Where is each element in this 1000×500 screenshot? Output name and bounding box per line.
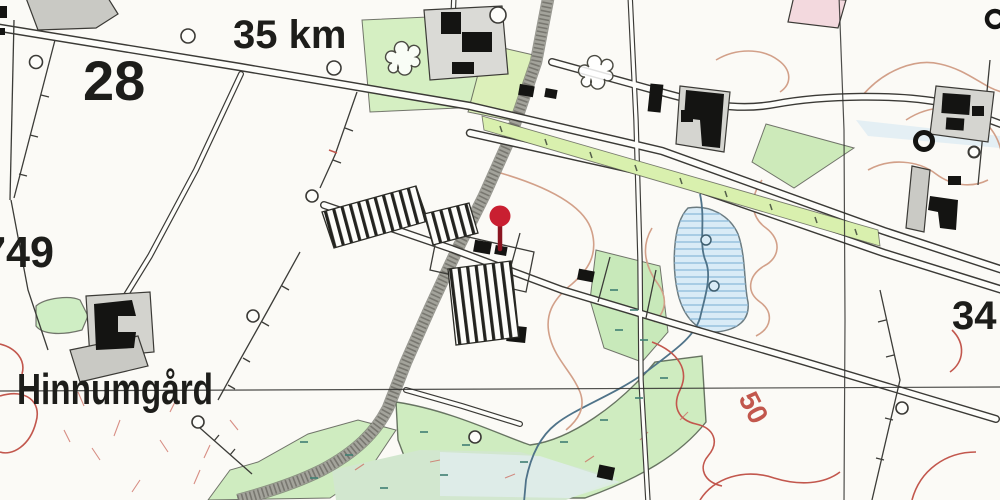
map-viewport[interactable]: 35 km 28 749 Hinnumgård 34 50: [0, 0, 1000, 500]
topo-map-canvas[interactable]: 35 km 28 749 Hinnumgård 34 50: [0, 0, 1000, 500]
distance-marker-label: 35 km: [233, 13, 346, 57]
grid-number-right: 34: [952, 294, 997, 338]
map-pin-head: [490, 206, 511, 227]
grid-number-left: 749: [0, 228, 54, 277]
grid-number-topleft: 28: [83, 49, 145, 112]
place-name-label: Hinnumgård: [17, 365, 213, 414]
